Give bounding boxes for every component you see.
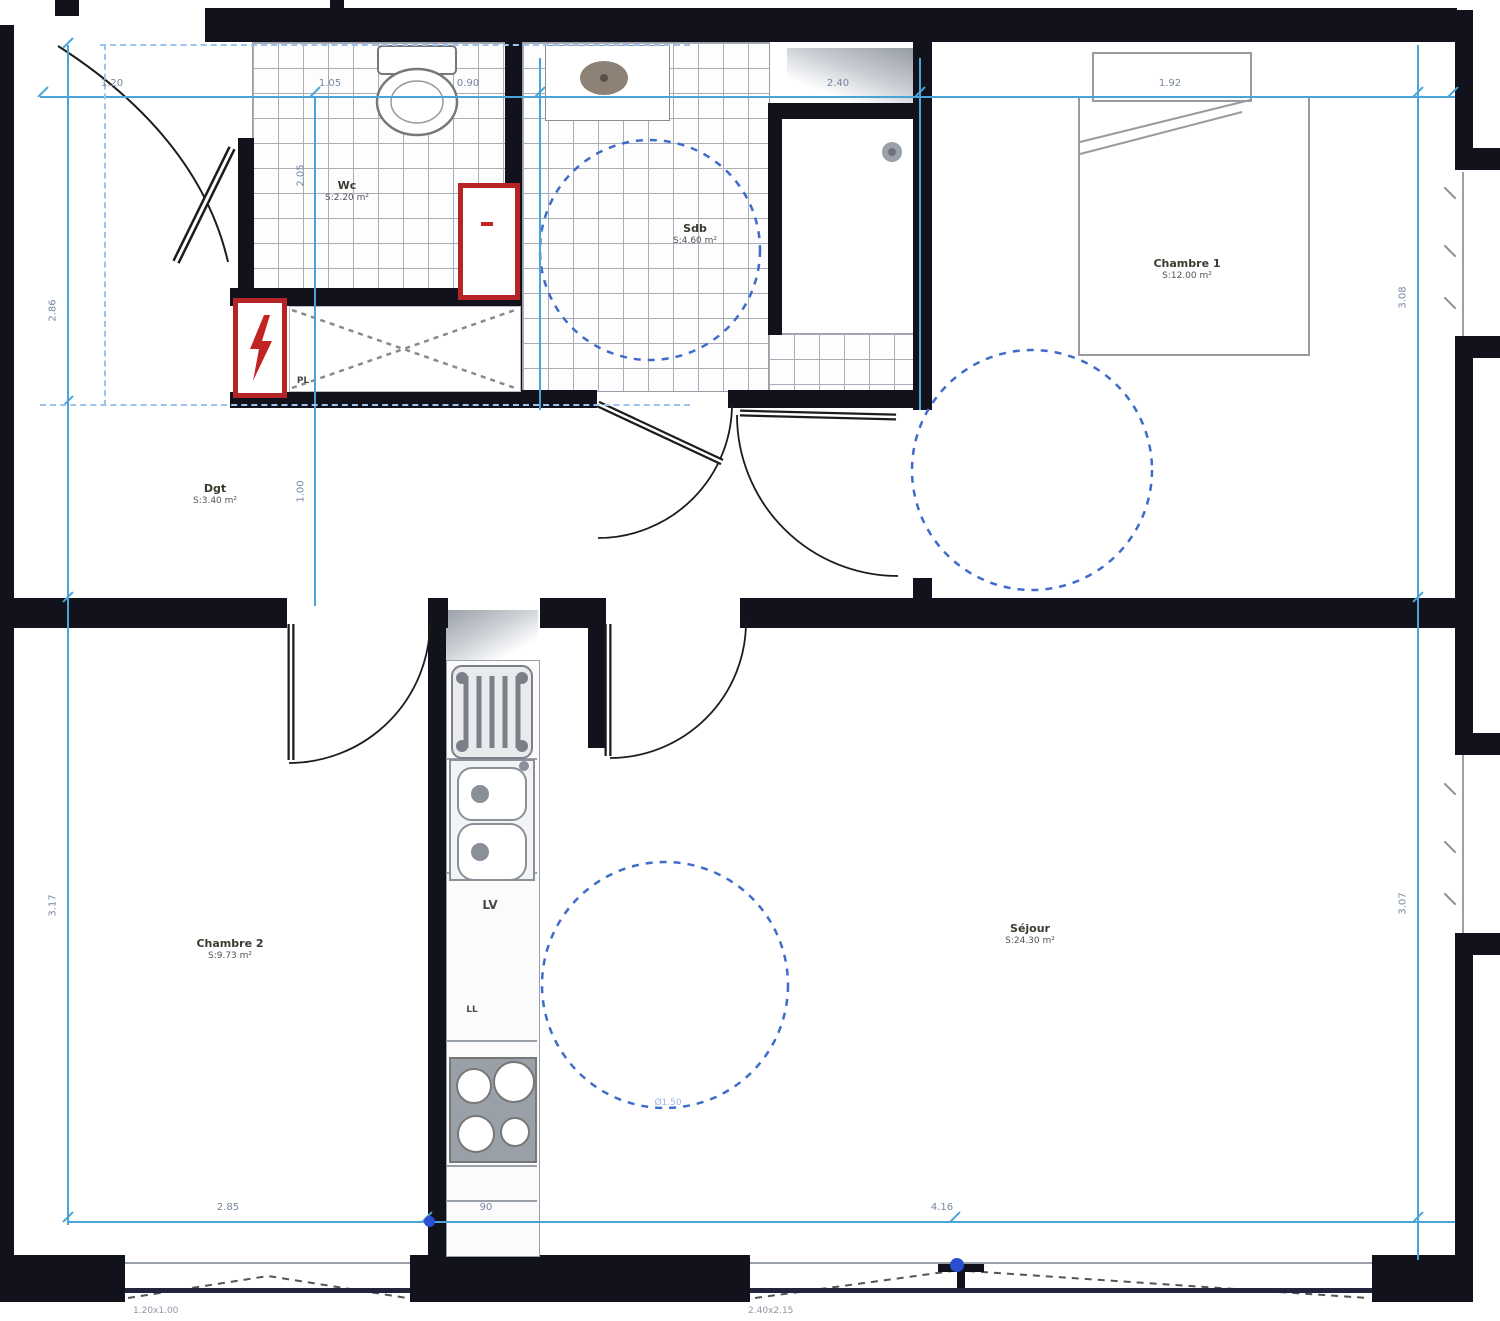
dashed-guide-top [100, 44, 690, 46]
room-label-sdb: Sdb S:4.60 m² [673, 222, 717, 248]
dim-label: 3.17 [48, 894, 59, 916]
room-name: Wc [325, 179, 369, 193]
wall-middle-d [740, 598, 1457, 628]
floor-plan: 1.20 1.05 0.90 2.40 1.92 2.86 3.17 2.05 … [0, 0, 1500, 1321]
sejour-door [608, 622, 746, 758]
entrance-door [58, 46, 232, 262]
window-jamb-3 [1455, 733, 1500, 755]
window-jamb-2 [1455, 336, 1500, 358]
room-name: Chambre 2 [196, 937, 263, 951]
window-note: 1.20x1.00 [133, 1306, 178, 1316]
dim-label: 3.07 [1398, 892, 1409, 914]
closet-label: PL [297, 376, 309, 386]
vanity-counter [545, 45, 670, 121]
wall-top-tick [330, 0, 344, 10]
wall-shower-top [768, 103, 930, 119]
dim-label: 2.86 [48, 299, 59, 321]
dim-label: 0.90 [457, 78, 479, 89]
window-hatch [1444, 187, 1457, 200]
room-label-chambre2: Chambre 2 S:9.73 m² [196, 937, 263, 963]
wall-bottom-center [410, 1255, 750, 1302]
window-hatch [1444, 783, 1457, 796]
wall-middle-c [540, 598, 588, 628]
dim-node-dot [424, 1216, 435, 1227]
dashed-guide-left [104, 44, 106, 406]
room-label-sejour: Séjour S:24.30 m² [1005, 922, 1055, 948]
window1-sill [125, 1288, 410, 1293]
dim-label: 2.05 [296, 164, 307, 186]
wall-bottom-left [14, 1255, 125, 1302]
turning-circle-chambre1 [912, 350, 1152, 590]
wall-top-left-stub [55, 0, 79, 16]
wall-right-middle [1455, 338, 1473, 752]
lightning-bolt-icon [238, 303, 282, 393]
bed-headboard [1092, 52, 1252, 102]
wall-kitchen-left [428, 628, 446, 1258]
dashed-guide-mid [40, 404, 690, 406]
chambre1-door [737, 413, 898, 576]
dimension-line-sdb-right [919, 58, 921, 410]
dimension-line-sdb-left [539, 58, 541, 410]
room-area: S:24.30 m² [1005, 936, 1055, 948]
room-area: S:4.60 m² [673, 236, 717, 248]
wall-sdb-chambre1-stub [913, 578, 932, 600]
dim-label: 2.40 [827, 78, 849, 89]
closet [289, 306, 521, 392]
wall-middle-b [428, 598, 448, 628]
room-area: S:2.20 m² [325, 193, 369, 205]
dim-label: 2.85 [217, 1202, 239, 1213]
wall-shower-left [768, 103, 782, 335]
window-hatch [1444, 893, 1457, 906]
window-jamb-1 [1455, 148, 1500, 170]
dimension-line-bottom [67, 1221, 1455, 1223]
room-name: Dgt [193, 482, 237, 496]
window2-glass [750, 1262, 1372, 1264]
window1-glass [125, 1262, 410, 1264]
dimension-line-right [1417, 45, 1419, 1260]
counter-divider [447, 1165, 537, 1167]
wall-right-upper [1455, 10, 1473, 170]
dishwasher-label: LV [482, 898, 497, 912]
room-label-dgt: Dgt S:3.40 m² [193, 482, 237, 508]
wall-wc-left [238, 138, 254, 302]
kitchen-counter [446, 660, 540, 1257]
bathroom-tiled-floor-strip [768, 333, 932, 392]
bed [1078, 96, 1310, 356]
wall-bottom-right [1372, 1255, 1457, 1302]
dim-label: 1.05 [319, 78, 341, 89]
dim-label: 90 [480, 1202, 493, 1213]
room-area: S:9.73 m² [196, 951, 263, 963]
electrical-panel [233, 298, 287, 398]
right-window1-glass [1462, 172, 1464, 336]
room-name: Chambre 1 [1153, 257, 1220, 271]
window-hatch [1444, 297, 1457, 310]
room-label-chambre1: Chambre 1 S:12.00 m² [1153, 257, 1220, 283]
window-hatch [1444, 245, 1457, 258]
window2-sill [750, 1288, 1372, 1293]
window-hatch [1444, 841, 1457, 854]
dim-label: 4.16 [931, 1202, 953, 1213]
window-reveal-shading [787, 48, 930, 103]
dimension-line-top [40, 96, 1455, 98]
dimension-line-left [67, 45, 69, 1225]
dimension-line-inner-v [314, 96, 316, 606]
bathroom-door [598, 404, 732, 538]
room-area: S:3.40 m² [193, 496, 237, 508]
wall-right-lower [1455, 935, 1473, 1302]
washing-machine-label: LL [466, 1005, 477, 1015]
chambre2-door [289, 622, 430, 763]
counter-divider [447, 1040, 537, 1042]
technical-duct [458, 183, 520, 300]
counter-divider [447, 758, 537, 760]
shower-head-icon [882, 142, 902, 162]
turning-circle-sejour [542, 862, 788, 1108]
dim-label: 1.92 [1159, 78, 1181, 89]
room-name: Séjour [1005, 922, 1055, 936]
window-jamb-4 [1455, 933, 1500, 955]
wall-kitchen-column [588, 598, 606, 748]
wall-sdb-bottom-right [728, 390, 932, 408]
dim-label: 1.20 [101, 78, 123, 89]
counter-divider [447, 872, 537, 874]
wall-top [205, 8, 1457, 42]
room-area: S:12.00 m² [1153, 271, 1220, 283]
wall-middle-a [14, 598, 287, 628]
window-note: 2.40x2.15 [748, 1306, 793, 1316]
turning-circle-label: Ø1.50 [654, 1098, 681, 1108]
kitchen-reveal-shading [446, 610, 538, 660]
window-node-dot [950, 1258, 964, 1272]
dim-label: 1.00 [296, 480, 307, 502]
room-label-wc: Wc S:2.20 m² [325, 179, 369, 205]
dim-label: 3.08 [1398, 286, 1409, 308]
room-name: Sdb [673, 222, 717, 236]
right-window2-glass [1462, 755, 1464, 933]
wall-left [0, 25, 14, 1302]
